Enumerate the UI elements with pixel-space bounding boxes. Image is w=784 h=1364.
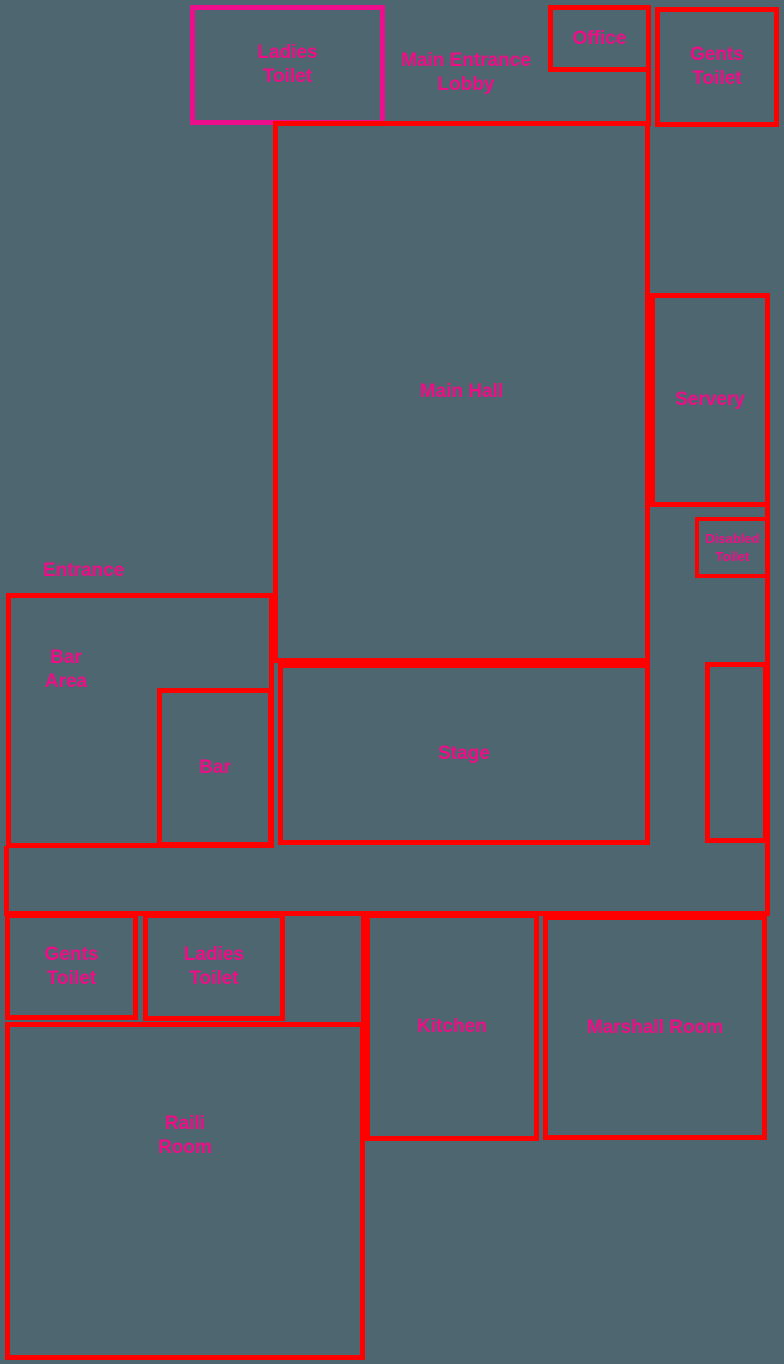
room-ladies-toilet-top: Ladies Toilet: [190, 5, 385, 125]
room-label: Bar: [199, 756, 231, 780]
room-kitchen: Kitchen: [365, 913, 539, 1141]
room-label: Kitchen: [417, 1015, 487, 1039]
room-label: Marshall Room: [587, 1016, 723, 1040]
room-label: Servery: [675, 388, 745, 412]
room-raili-room: [5, 1022, 365, 1360]
room-bar: Bar: [157, 688, 273, 847]
wall-corridor-left: [4, 846, 9, 913]
room-label-line: Gents: [45, 943, 99, 967]
room-main-hall: Main Hall: [273, 121, 650, 663]
label-line: Room: [115, 1136, 255, 1160]
room-label-line: Toilet: [47, 967, 96, 991]
room-label-line: Disabled: [705, 530, 759, 548]
room-gents-toilet-top: Gents Toilet: [655, 7, 779, 127]
room-label-line: Toilet: [692, 67, 741, 91]
room-label-line: Gents: [690, 43, 744, 67]
room-label: Office: [573, 27, 627, 51]
room-label: Stage: [438, 742, 490, 766]
room-servery: Servery: [650, 293, 770, 507]
label-entrance: Entrance: [43, 559, 124, 583]
label-line: Lobby: [386, 73, 546, 97]
room-label: Main Hall: [420, 380, 503, 404]
label-bar-area: Bar Area: [10, 646, 122, 694]
room-label-line: Toilet: [189, 967, 238, 991]
room-disabled-toilet: Disabled Toilet: [695, 517, 770, 578]
floor-plan: Ladies Toilet Main Entrance Lobby Office…: [0, 0, 784, 1364]
label-raili-room: Raili Room: [115, 1112, 255, 1160]
room-label-line: Toilet: [716, 548, 750, 566]
room-gents-toilet-bottom: Gents Toilet: [5, 913, 138, 1020]
label-main-entrance-lobby: Main Entrance Lobby: [386, 49, 546, 97]
room-label-line: Toilet: [263, 65, 312, 89]
label-line: Area: [10, 670, 122, 694]
room-label-line: Ladies: [184, 943, 244, 967]
label-line: Raili: [115, 1112, 255, 1136]
room-label-line: Ladies: [257, 41, 317, 65]
room-office: Office: [548, 5, 651, 72]
wall-raili-room-right-extension: [361, 911, 366, 1026]
label-line: Bar: [10, 646, 122, 670]
room-unlabelled-side: [705, 662, 768, 843]
wall-office-extension: [646, 70, 651, 126]
room-ladies-toilet-bottom: Ladies Toilet: [143, 913, 285, 1021]
room-marshall-room: Marshall Room: [543, 915, 767, 1140]
room-stage: Stage: [278, 663, 650, 845]
label-line: Main Entrance: [386, 49, 546, 73]
